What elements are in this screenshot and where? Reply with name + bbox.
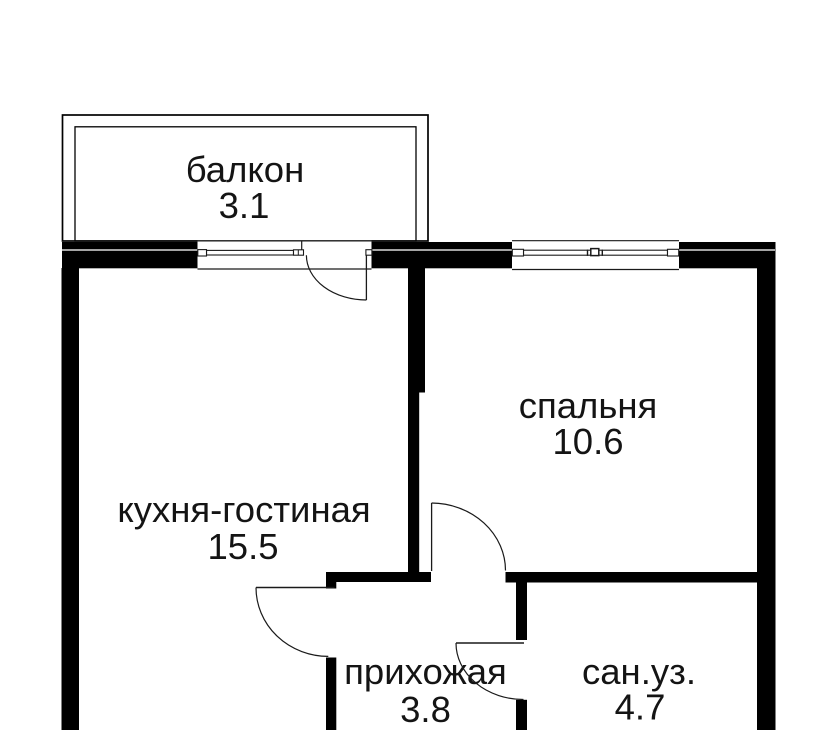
svg-text:прихожая: прихожая (344, 651, 507, 692)
svg-text:спальня: спальня (519, 385, 658, 426)
svg-text:10.6: 10.6 (552, 421, 623, 462)
svg-text:3.8: 3.8 (400, 689, 451, 730)
svg-text:балкон: балкон (186, 149, 305, 190)
svg-text:15.5: 15.5 (207, 526, 278, 567)
svg-text:кухня-гостиная: кухня-гостиная (117, 489, 370, 530)
svg-text:4.7: 4.7 (615, 687, 666, 728)
svg-text:3.1: 3.1 (219, 185, 270, 226)
